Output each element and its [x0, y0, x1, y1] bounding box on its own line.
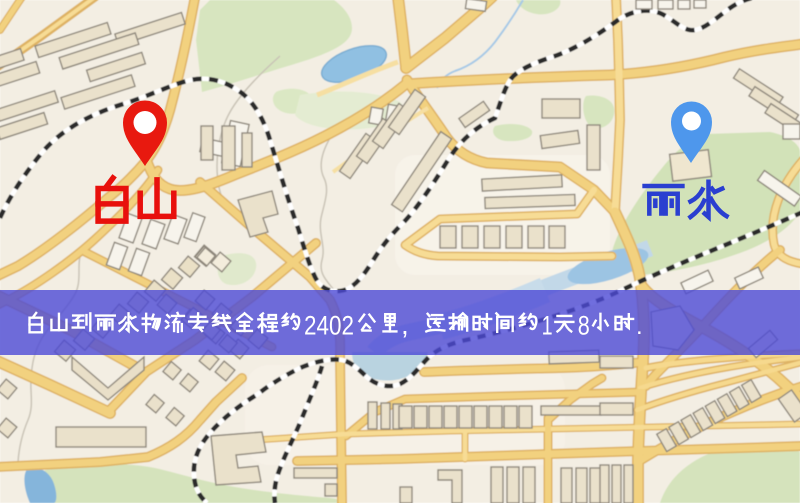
svg-text:,: , [401, 309, 409, 340]
svg-text:.: . [636, 313, 643, 340]
svg-text:8: 8 [578, 311, 590, 341]
svg-text:1: 1 [542, 311, 553, 341]
svg-text:2402: 2402 [304, 311, 354, 341]
